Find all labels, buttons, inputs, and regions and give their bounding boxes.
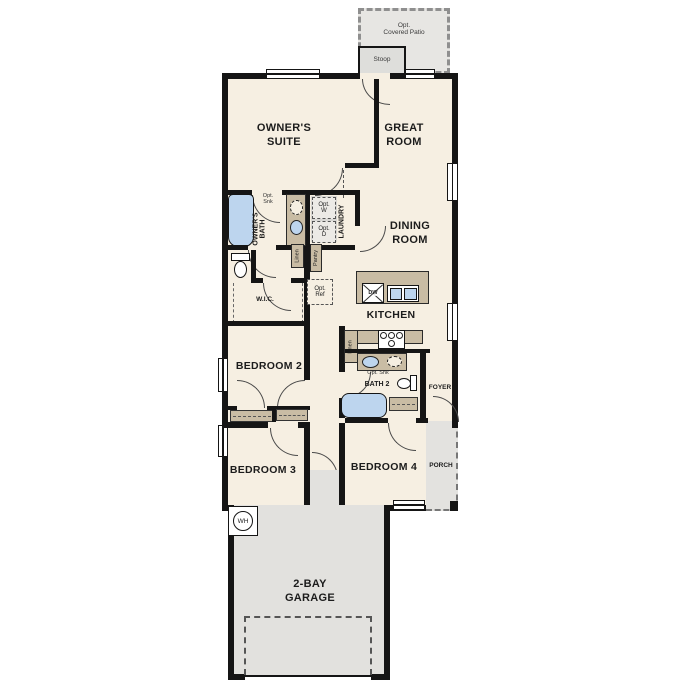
- wall-foyer-porch: [420, 418, 428, 423]
- kitchen-sink: [387, 285, 419, 302]
- window-owners-suite-top: [266, 69, 320, 79]
- owners-bath-label: OWNER'S BATH: [253, 212, 267, 245]
- bath2-sink: [362, 356, 379, 368]
- bath2-toilet-tank: [410, 375, 417, 391]
- porch-post-top: [452, 421, 458, 428]
- garage-wall-left: [228, 511, 234, 680]
- great-room-label: GREAT ROOM: [381, 122, 427, 150]
- wall-laundry-right: [355, 190, 360, 226]
- porch-label: PORCH: [424, 462, 458, 469]
- wall-suite-hall-jog: [345, 163, 379, 168]
- dishwasher-label: DW: [367, 290, 378, 296]
- bath2-sink-optional: [387, 356, 402, 367]
- wall-bath-bottom-1: [228, 245, 248, 250]
- wall-bed3-top-1: [222, 422, 268, 428]
- bath2-toilet-bowl: [397, 378, 411, 389]
- stoop-label: Stoop: [374, 57, 391, 64]
- opt-ref: Opt. Ref: [307, 279, 333, 305]
- bedroom2-label: BEDROOM 2: [230, 360, 308, 373]
- laundry-label-wrap: LAUNDRY: [334, 194, 350, 248]
- kitchen-label: KITCHEN: [362, 309, 420, 322]
- window-kitchen-right: [447, 303, 458, 341]
- window-dining-right: [447, 163, 458, 201]
- porch-post-bottom: [450, 501, 458, 511]
- garage-wall-bottom-1: [228, 674, 245, 680]
- wall-wic-bed2: [222, 321, 310, 326]
- garage-hall-opening: [310, 505, 339, 513]
- pantry: Pantry: [310, 244, 322, 272]
- floor-plan: Opt. Covered Patio Stoop OWNER'S BATH Op…: [0, 0, 687, 687]
- opt-dryer: Opt. D: [312, 221, 336, 243]
- bedroom3-label: BEDROOM 3: [224, 464, 302, 477]
- window-bedroom3-left: [218, 425, 228, 457]
- wall-closet-divider: [272, 406, 276, 422]
- bedroom4-label: BEDROOM 4: [346, 461, 422, 474]
- water-heater-label: WH: [238, 518, 249, 525]
- owners-suite-label: OWNER'S SUITE: [248, 122, 320, 150]
- garage-wall-bottom-2: [371, 674, 390, 680]
- linen-owners-label: Linen: [295, 249, 301, 262]
- garage-label: 2-BAY GARAGE: [270, 578, 350, 606]
- owners-toilet-bowl: [234, 261, 247, 278]
- closet-shelf-right: [276, 409, 308, 421]
- window-bedroom4-bottom: [393, 500, 425, 510]
- opt-sink-owners-label: Opt. Snk: [258, 194, 278, 206]
- dishwasher: DW: [362, 283, 384, 303]
- range: [378, 330, 405, 349]
- owners-toilet-tank: [231, 253, 250, 261]
- bath2-label: BATH 2: [356, 381, 398, 389]
- garage-wall-right: [384, 511, 390, 680]
- garage-door-line: [245, 675, 371, 677]
- stoop: Stoop: [358, 46, 406, 75]
- window-great-room-top: [405, 69, 435, 79]
- owners-sink-optional: [290, 200, 303, 215]
- water-heater-icon: WH: [233, 511, 253, 531]
- linen-owners: Linen: [291, 244, 304, 268]
- dining-room-label: DINING ROOM: [384, 220, 436, 248]
- bath2-closet-shelf: [389, 397, 418, 411]
- owners-sink: [290, 220, 303, 235]
- laundry-label: LAUNDRY: [339, 204, 346, 238]
- linen-hall: Linen: [344, 330, 358, 363]
- pantry-label: Pantry: [313, 250, 319, 266]
- garage-door-dashed: [244, 616, 372, 675]
- closet-shelf-left: [230, 410, 274, 422]
- opt-washer: Opt. W: [312, 197, 336, 219]
- wall-suite-greatroom: [374, 79, 379, 163]
- opt-covered-patio-label: Opt. Covered Patio: [361, 23, 447, 37]
- wall-bed4-top-1: [345, 418, 388, 423]
- wic-label: W.I.C.: [245, 296, 285, 303]
- wall-bed4-left: [339, 423, 345, 511]
- opt-sink-bath2-label: Opt. Snk: [363, 371, 393, 377]
- foyer-label: FOYER: [424, 384, 456, 391]
- window-bedroom2-left: [218, 358, 228, 392]
- bath2-tub: [341, 393, 387, 418]
